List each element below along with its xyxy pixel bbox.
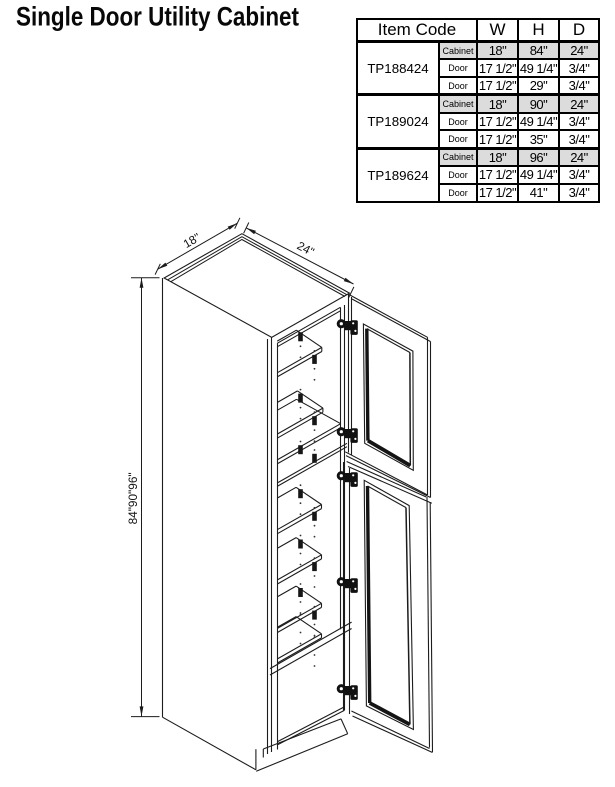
svg-text:24": 24" <box>295 239 317 259</box>
svg-text:18": 18" <box>181 230 203 251</box>
svg-text:84"90"96": 84"90"96" <box>126 472 140 524</box>
